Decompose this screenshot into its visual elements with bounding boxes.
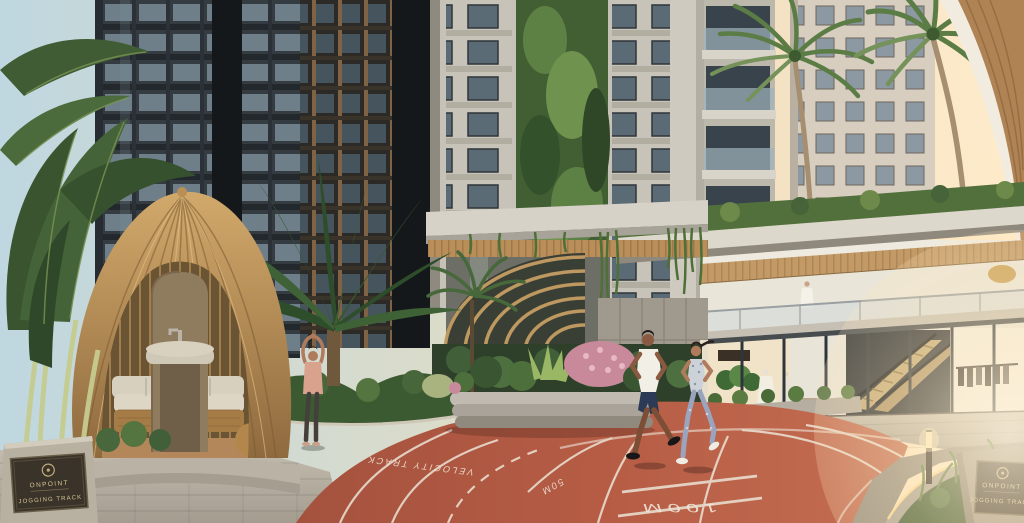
mark-100m: 100M bbox=[635, 501, 719, 515]
scene-root: VELOCITY TRACK 100M 50M bbox=[0, 0, 1024, 523]
drinking-fountain bbox=[146, 272, 214, 452]
render-scene: VELOCITY TRACK 100M 50M bbox=[0, 0, 1024, 523]
sign-left: ONPOINT JOGGING TRACK bbox=[0, 436, 98, 523]
